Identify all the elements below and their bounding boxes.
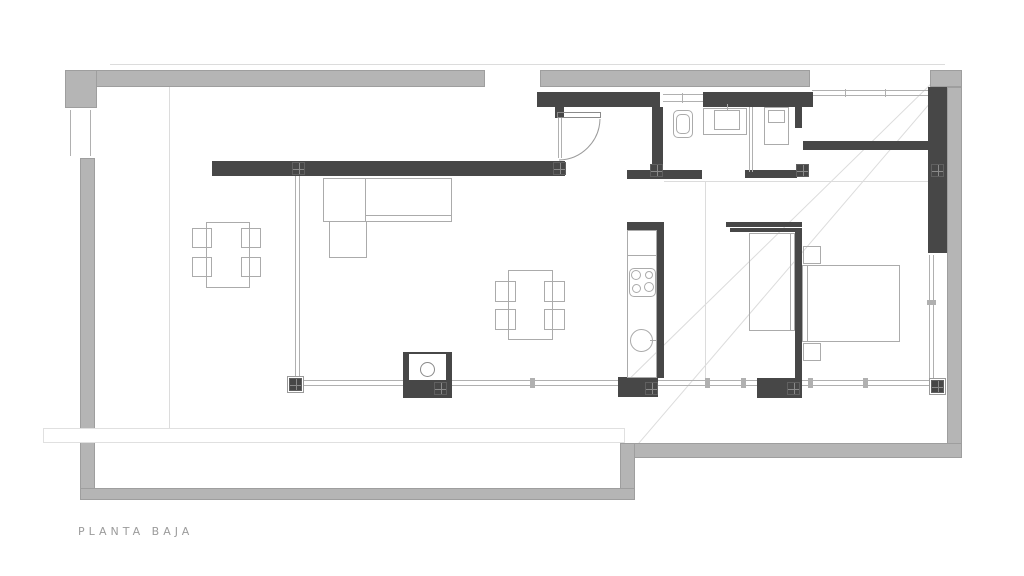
site-boundary-wall-right — [947, 87, 962, 458]
glazing-south-1 — [300, 380, 403, 386]
floor-plan-canvas: PLANTA BAJA — [0, 0, 1024, 576]
entry-door-swing-arc — [559, 119, 600, 160]
column-marker — [650, 164, 663, 177]
kitchen-faucet — [650, 340, 657, 341]
glazing-mullion — [885, 89, 886, 97]
outdoor-chair — [192, 257, 212, 277]
kitchen-counter-divider — [627, 255, 657, 256]
column-marker — [796, 164, 809, 177]
dining-chair — [495, 309, 516, 330]
floor-plan-label: PLANTA BAJA — [78, 525, 193, 538]
cooktop-burner — [644, 282, 654, 292]
outdoor-chair — [192, 228, 212, 248]
cooktop-burner — [632, 284, 641, 293]
nightstand — [803, 343, 821, 361]
entry-door-leaf — [557, 112, 601, 118]
sofa-chaise — [329, 221, 367, 258]
glazing-mullion — [927, 300, 936, 305]
wall-kitchen-east — [656, 222, 664, 378]
site-boundary-wall-bottom-right — [625, 443, 962, 458]
wall-bathroom-north — [703, 92, 813, 107]
glazing-mullion — [845, 89, 846, 97]
bed-headboard-line — [807, 265, 808, 342]
wall-bathroom-east — [795, 107, 802, 128]
glazing-mullion — [682, 93, 683, 103]
wall-entry-north — [537, 92, 660, 107]
toilet-bowl — [676, 114, 690, 134]
site-boundary-wall-bottom-left — [80, 488, 635, 500]
site-boundary-wall-left — [80, 158, 95, 500]
reflecting-pool — [43, 428, 625, 443]
column-marker — [553, 162, 566, 175]
entry-sidelight — [558, 118, 562, 158]
site-boundary-corner-left — [65, 70, 97, 108]
wall-bedroom-north — [726, 222, 802, 227]
bathroom-faucet — [727, 104, 728, 111]
dining-chair — [544, 281, 565, 302]
wardrobe — [749, 233, 795, 331]
boundary-window-left — [70, 110, 91, 156]
kitchen-counter — [627, 230, 657, 378]
wall-living-north — [212, 161, 565, 176]
column-marker — [787, 382, 800, 395]
wall-bedroom-west — [795, 228, 802, 378]
wardrobe-rail-line — [790, 233, 791, 331]
column-marker — [931, 164, 944, 177]
glazing-living-west — [295, 176, 300, 382]
bed — [802, 265, 900, 342]
outdoor-chair — [241, 228, 261, 248]
glazing-mullion — [530, 378, 535, 388]
cooktop-burner — [631, 270, 641, 280]
site-boundary-wall-top-left — [65, 70, 485, 87]
outdoor-chair — [241, 257, 261, 277]
glazing-mullion — [863, 378, 868, 388]
sofa-seat-line — [365, 215, 452, 216]
glazing-mullion — [741, 378, 746, 388]
column-marker — [292, 162, 305, 175]
cooktop-burner — [645, 271, 653, 279]
wall-storage-south — [803, 141, 930, 150]
fireplace-flue — [420, 362, 435, 377]
column-marker — [931, 380, 944, 393]
dining-chair — [544, 309, 565, 330]
column-marker — [434, 382, 447, 395]
shower-unit-inner — [768, 110, 785, 123]
site-boundary-wall-top-mid — [540, 70, 810, 87]
column-marker — [645, 382, 658, 395]
dining-chair — [495, 281, 516, 302]
glazing-bedroom-east — [929, 255, 934, 382]
glazing-south-2 — [452, 380, 618, 386]
glazing-mullion — [808, 378, 813, 388]
wall-bathroom-south-left — [627, 170, 702, 179]
glazing-mullion — [705, 378, 710, 388]
column-marker — [289, 378, 302, 391]
storage-window — [812, 90, 928, 96]
wall-bathroom-west — [652, 107, 663, 170]
bathroom-sink — [714, 110, 740, 130]
nightstand — [803, 246, 821, 264]
shower-partition — [749, 107, 753, 172]
wall-bedroom-north-2 — [730, 228, 802, 232]
bathroom-window — [663, 94, 703, 102]
site-boundary-wall-top-right — [930, 70, 962, 87]
wall-kitchen-north-edge — [627, 222, 664, 230]
